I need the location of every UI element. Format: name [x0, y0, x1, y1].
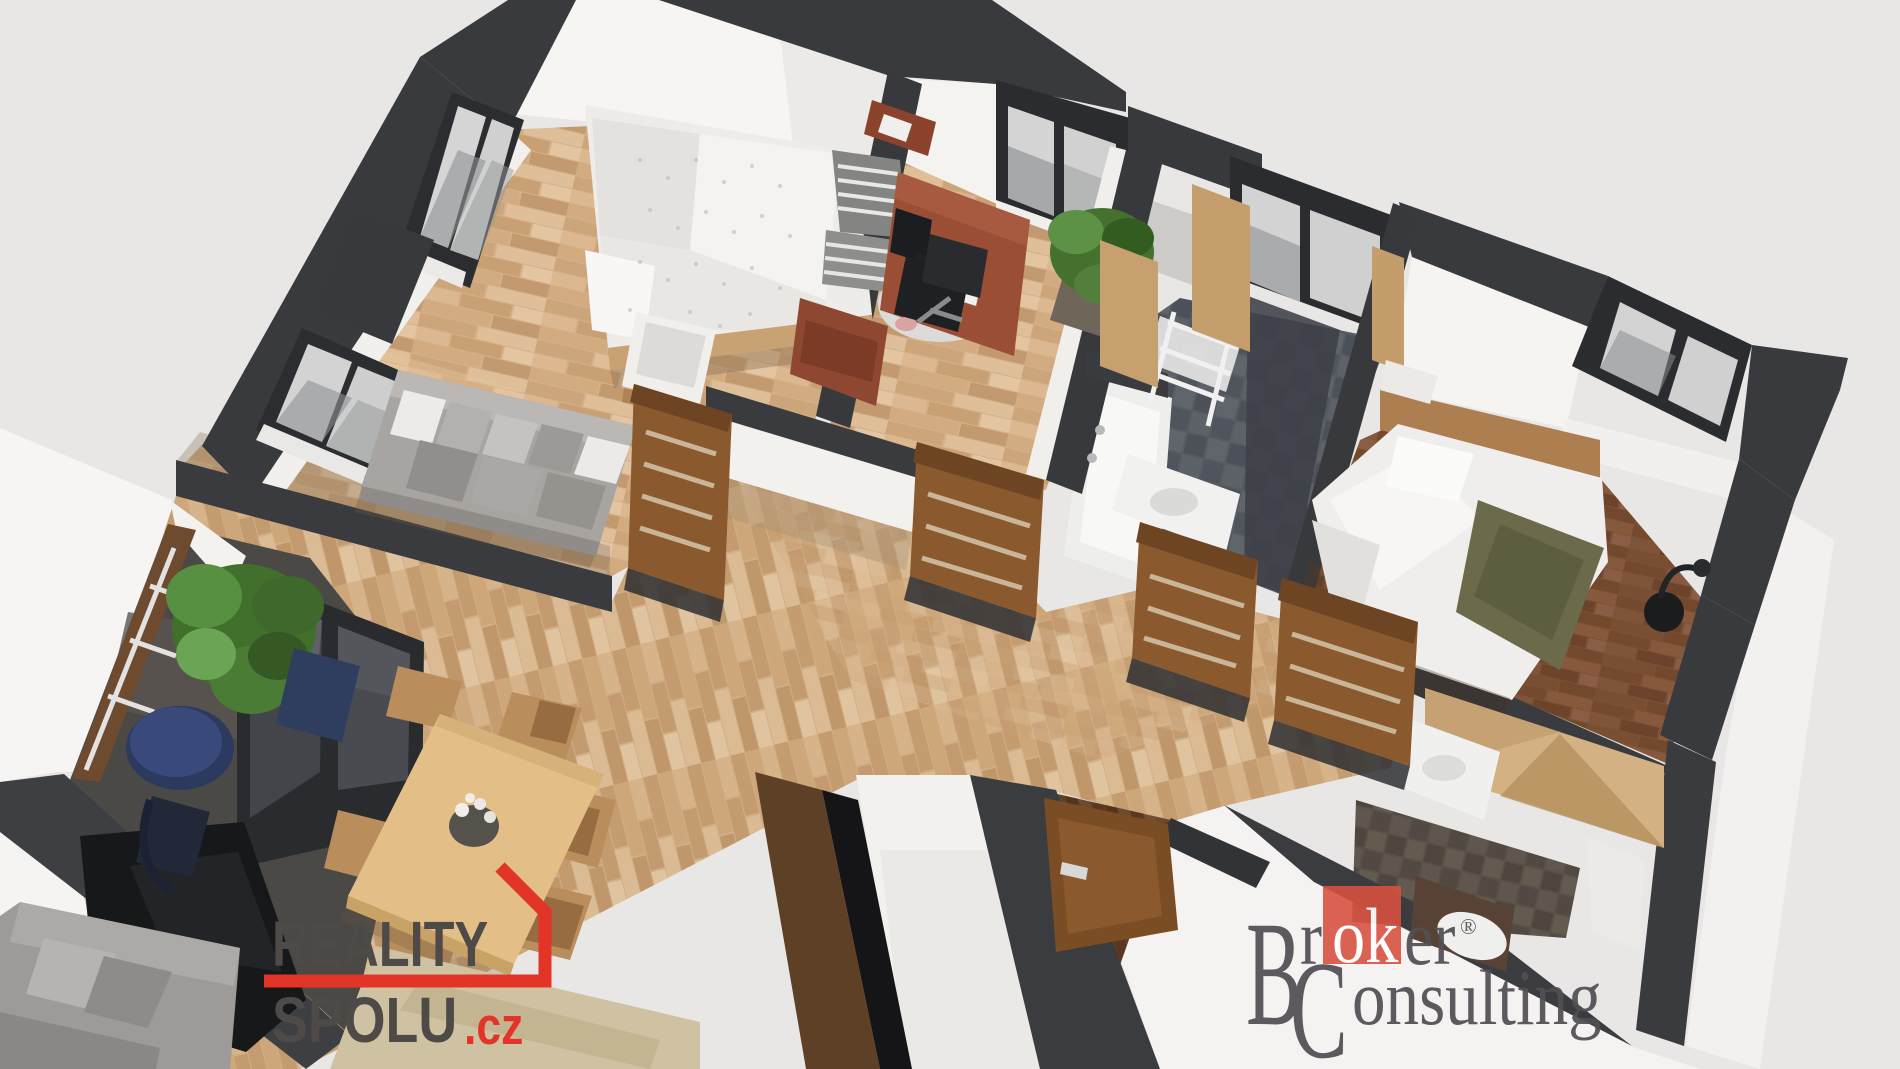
svg-text:C: C [1290, 933, 1348, 1069]
svg-text:®: ® [1460, 914, 1477, 939]
svg-text:SPOLU: SPOLU [272, 984, 457, 1057]
svg-text:onsulting: onsulting [1352, 954, 1602, 1041]
svg-text:.cz: .cz [464, 997, 523, 1055]
svg-text:REALITY: REALITY [272, 909, 488, 980]
